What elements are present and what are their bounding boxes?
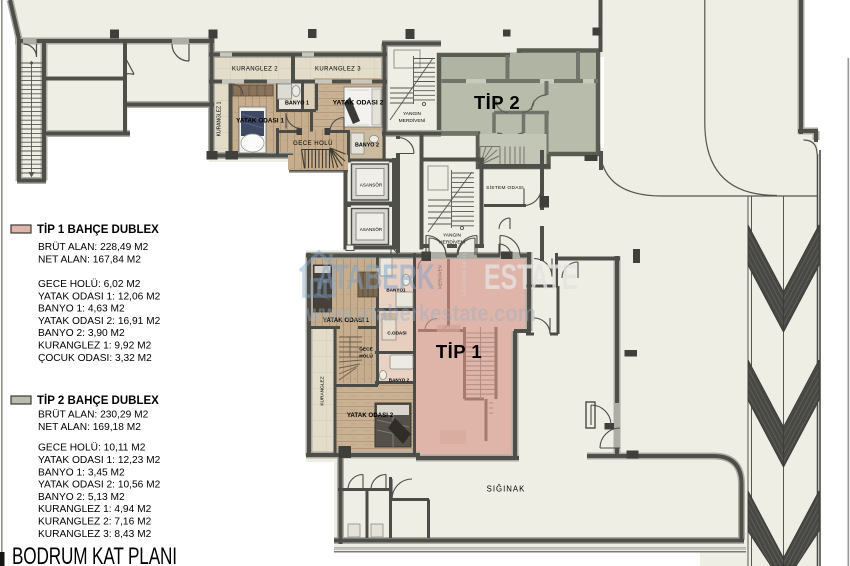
svg-text:YATAK ODASI 2: YATAK ODASI 2 bbox=[333, 100, 384, 107]
svg-text:C.ODASI: C.ODASI bbox=[387, 331, 406, 336]
svg-text:MERDİVEN: MERDİVEN bbox=[437, 265, 443, 289]
svg-text:BRÜT ALAN: 228,49 M2: BRÜT ALAN: 228,49 M2 bbox=[38, 241, 149, 253]
svg-text:BANYO 2: 5,13 M2: BANYO 2: 5,13 M2 bbox=[38, 492, 125, 503]
svg-text:YATAK ODASI 1: 12,23 M2: YATAK ODASI 1: 12,23 M2 bbox=[38, 455, 161, 466]
svg-text:ASANSÖR: ASANSÖR bbox=[360, 182, 383, 188]
svg-text:HOLÜ: HOLÜ bbox=[359, 353, 373, 360]
svg-text:GECE HOLÜ: 10,11 M2: GECE HOLÜ: 10,11 M2 bbox=[38, 442, 146, 454]
svg-text:NET ALAN: 169,18 M2: NET ALAN: 169,18 M2 bbox=[38, 422, 141, 433]
svg-text:KURANGLEZ: KURANGLEZ bbox=[320, 376, 326, 405]
svg-text:MERDİVENİ: MERDİVENİ bbox=[399, 117, 426, 124]
svg-text:TİP 1: TİP 1 bbox=[436, 341, 482, 362]
svg-text:KURANGLEZ 3: 8,43 M2: KURANGLEZ 3: 8,43 M2 bbox=[38, 529, 152, 540]
svg-text:TİP 1 BAHÇE DUBLEX: TİP 1 BAHÇE DUBLEX bbox=[37, 223, 159, 236]
svg-text:SİSTEM ODASI: SİSTEM ODASI bbox=[486, 184, 524, 191]
svg-text:KURANGLEZ 1: 9,92 M2: KURANGLEZ 1: 9,92 M2 bbox=[38, 341, 152, 352]
svg-text:GECE HOLÜ: GECE HOLÜ bbox=[293, 140, 333, 147]
svg-text:BANYO 1: BANYO 1 bbox=[285, 101, 309, 107]
svg-text:ASANSÖR: ASANSÖR bbox=[360, 226, 383, 232]
svg-text:TİP 2 BAHÇE DUBLEX: TİP 2 BAHÇE DUBLEX bbox=[37, 394, 159, 407]
svg-text:BANYO 2: BANYO 2 bbox=[389, 378, 410, 383]
svg-text:YATAK ODASI 2: YATAK ODASI 2 bbox=[347, 412, 394, 419]
svg-text:SIĞINAK: SIĞINAK bbox=[487, 485, 526, 494]
svg-text:GAYRİMENKUL: GAYRİMENKUL bbox=[461, 252, 468, 297]
svg-text:TİP 2: TİP 2 bbox=[474, 92, 520, 113]
svg-text:YATAK ODASI 1: YATAK ODASI 1 bbox=[236, 118, 284, 125]
svg-text:YATAK ODASI 2: 10,56 M2: YATAK ODASI 2: 10,56 M2 bbox=[38, 480, 161, 491]
svg-text:YATAK ODASI 1: 12,06 M2: YATAK ODASI 1: 12,06 M2 bbox=[38, 291, 161, 302]
svg-text:YATAK ODASI 2: 16,91 M2: YATAK ODASI 2: 16,91 M2 bbox=[38, 316, 161, 327]
svg-text:BANYO 1: 3,45 M2: BANYO 1: 3,45 M2 bbox=[38, 467, 125, 478]
svg-text:GECE: GECE bbox=[359, 347, 373, 353]
svg-text:KURANGLEZ 1: 4,94 M2: KURANGLEZ 1: 4,94 M2 bbox=[38, 504, 152, 515]
svg-text:KURANGLEZ 2: 7,16 M2: KURANGLEZ 2: 7,16 M2 bbox=[38, 517, 152, 528]
svg-text:YANGIN: YANGIN bbox=[403, 111, 422, 117]
svg-text:NET ALAN: 167,84 M2: NET ALAN: 167,84 M2 bbox=[38, 254, 141, 265]
svg-text:YANGIN: YANGIN bbox=[443, 233, 462, 239]
svg-text:GECE HOLÜ: 6,02 M2: GECE HOLÜ: 6,02 M2 bbox=[38, 278, 141, 290]
svg-text:KURANGLEZ 1: KURANGLEZ 1 bbox=[217, 101, 223, 136]
svg-text:ESTATE: ESTATE bbox=[484, 259, 578, 297]
svg-text:BRÜT ALAN: 230,29 M2: BRÜT ALAN: 230,29 M2 bbox=[38, 409, 149, 421]
svg-text:www.ataberkestate.com: www.ataberkestate.com bbox=[305, 300, 536, 327]
svg-text:ATABERK: ATABERK bbox=[317, 259, 435, 297]
svg-text:BANYO 2: BANYO 2 bbox=[355, 143, 379, 149]
svg-text:BODRUM KAT PLANI: BODRUM KAT PLANI bbox=[12, 543, 177, 566]
svg-text:KURANGLEZ 3: KURANGLEZ 3 bbox=[315, 67, 361, 73]
svg-text:ÇOCUK ODASI: 3,32 M2: ÇOCUK ODASI: 3,32 M2 bbox=[38, 353, 152, 364]
svg-text:BANYO 1: 4,63 M2: BANYO 1: 4,63 M2 bbox=[38, 304, 125, 315]
svg-text:BANYO 2: 3,90 M2: BANYO 2: 3,90 M2 bbox=[38, 328, 125, 339]
svg-text:KURANGLEZ 2: KURANGLEZ 2 bbox=[232, 67, 278, 73]
